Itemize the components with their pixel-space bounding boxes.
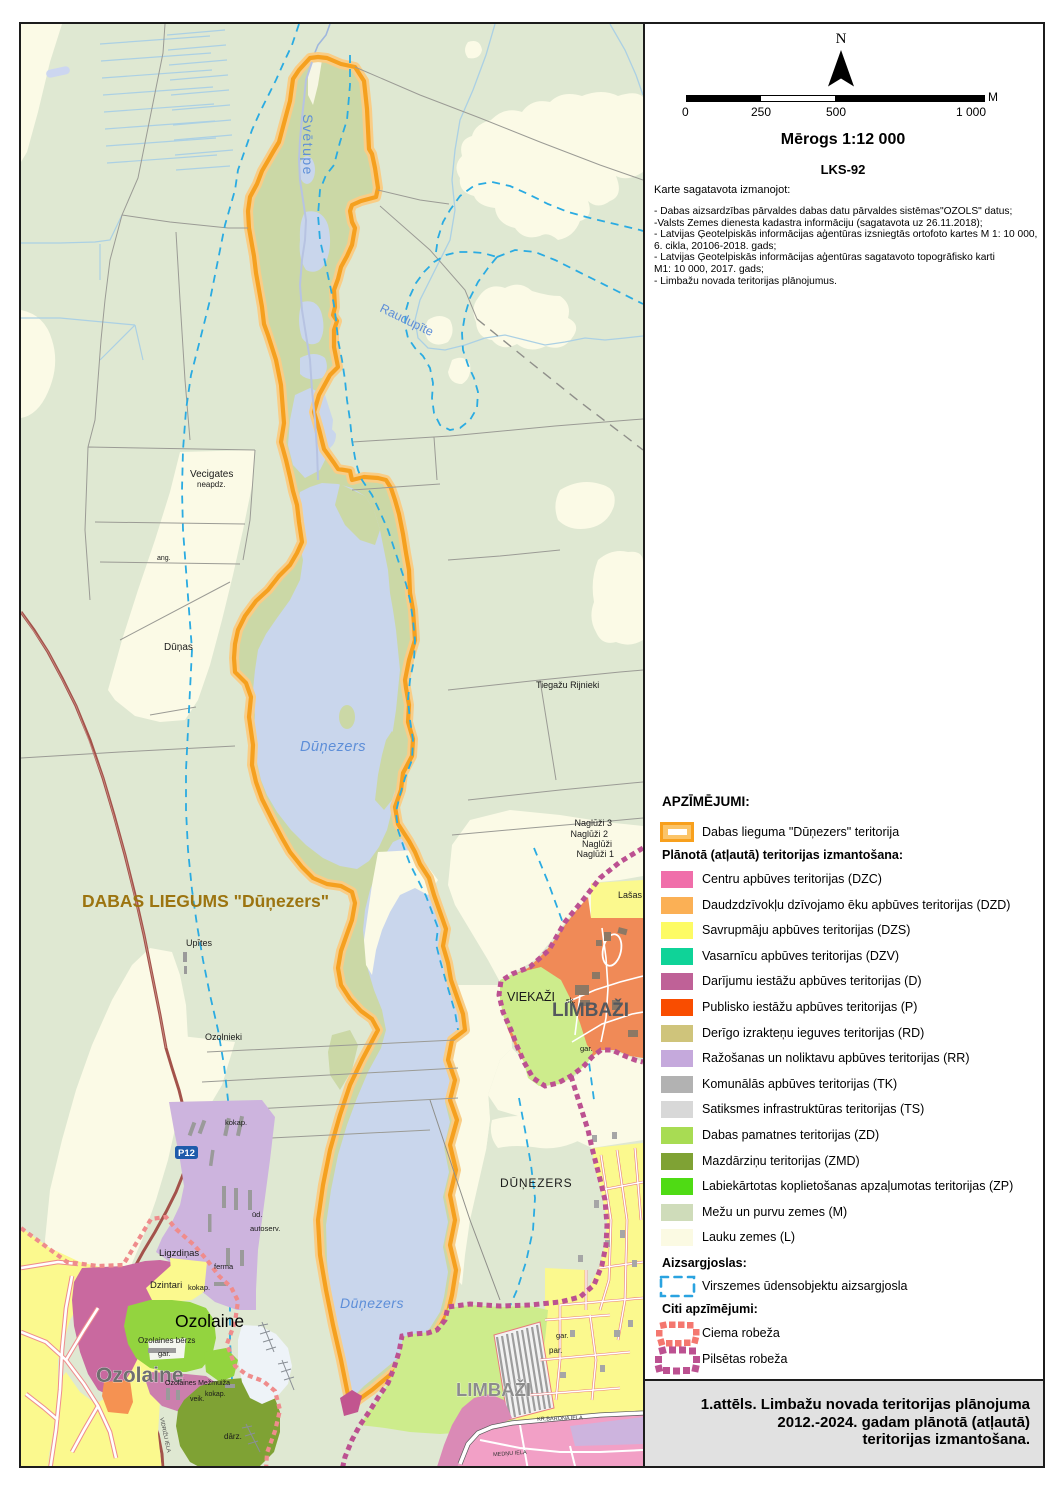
svg-text:Tiegažu Rijnieki: Tiegažu Rijnieki bbox=[536, 680, 599, 690]
svg-text:kokap.: kokap. bbox=[205, 1391, 226, 1398]
svg-text:Naglūži 2: Naglūži 2 bbox=[570, 829, 608, 839]
svg-text:par.: par. bbox=[549, 1346, 562, 1355]
svg-text:autoserv.: autoserv. bbox=[250, 1224, 280, 1233]
svg-text:VIEKAŽI: VIEKAŽI bbox=[507, 989, 555, 1004]
svg-text:Ozolaines Mežmuiža: Ozolaines Mežmuiža bbox=[165, 1380, 230, 1387]
svg-text:Naglūži 3: Naglūži 3 bbox=[574, 818, 612, 828]
svg-text:Ligzdiņas: Ligzdiņas bbox=[159, 1248, 199, 1259]
svg-text:gar.: gar. bbox=[556, 1331, 569, 1340]
svg-text:gar.: gar. bbox=[580, 1044, 593, 1053]
svg-text:Naglūži 1: Naglūži 1 bbox=[576, 849, 614, 859]
svg-text:Svētupe: Svētupe bbox=[300, 114, 316, 176]
svg-text:gar.: gar. bbox=[158, 1349, 171, 1358]
svg-text:Upītes: Upītes bbox=[186, 938, 213, 948]
svg-text:Dzintari: Dzintari bbox=[150, 1280, 182, 1291]
svg-text:Ozolaine: Ozolaine bbox=[175, 1311, 244, 1331]
svg-text:ūd.: ūd. bbox=[252, 1210, 262, 1219]
svg-text:DŪŅEZERS: DŪŅEZERS bbox=[500, 1176, 572, 1190]
svg-text:Ozolnieki: Ozolnieki bbox=[205, 1032, 242, 1042]
svg-text:dārz.: dārz. bbox=[224, 1432, 242, 1441]
svg-text:Ozolaines bērzs: Ozolaines bērzs bbox=[138, 1336, 195, 1345]
svg-text:ferma: ferma bbox=[214, 1262, 234, 1271]
svg-text:Naglūži: Naglūži bbox=[582, 839, 612, 849]
svg-text:kokap.: kokap. bbox=[188, 1283, 210, 1292]
svg-text:LIMBAŽI: LIMBAŽI bbox=[456, 1379, 531, 1400]
svg-text:neapdz.: neapdz. bbox=[197, 480, 225, 489]
svg-text:Vecigates: Vecigates bbox=[190, 469, 233, 480]
svg-text:P12: P12 bbox=[178, 1148, 195, 1159]
svg-text:veik.: veik. bbox=[190, 1396, 204, 1403]
svg-text:Dūņezers: Dūņezers bbox=[300, 739, 366, 755]
svg-text:Lašas: Lašas bbox=[618, 890, 643, 900]
svg-text:DABAS LIEGUMS "Dūņezers": DABAS LIEGUMS "Dūņezers" bbox=[82, 891, 329, 911]
svg-text:LIMBAŽI: LIMBAŽI bbox=[552, 999, 629, 1021]
svg-text:Dūņas: Dūņas bbox=[164, 642, 193, 653]
svg-text:Dūņezers: Dūņezers bbox=[340, 1295, 404, 1311]
svg-text:sk.: sk. bbox=[566, 996, 576, 1005]
svg-text:kokap.: kokap. bbox=[225, 1118, 247, 1127]
svg-text:ang.: ang. bbox=[157, 555, 171, 562]
